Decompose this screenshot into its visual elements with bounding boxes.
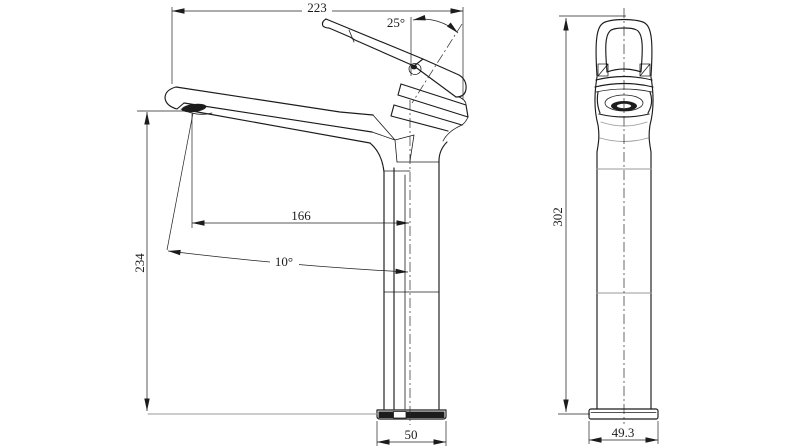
dim-handle-angle: 25° (387, 15, 458, 76)
dim-base-width-side: 50 (377, 421, 446, 446)
handle-step-line (349, 30, 354, 42)
dim-overall-width: 223 (172, 0, 463, 100)
spout-mid-edge (184, 103, 372, 132)
dim-spout-angle: 10° (167, 113, 408, 272)
front-left-edge (595, 77, 599, 409)
technical-drawing-page: 223 25° 166 10° 234 50 (0, 0, 800, 447)
body-facet-horizontals (384, 162, 439, 171)
pivot-boss-dot (411, 65, 417, 70)
faucet-technical-drawing: 223 25° 166 10° 234 50 (0, 0, 800, 447)
spout-nose (165, 87, 184, 109)
dim-overall-width-label: 223 (307, 0, 327, 15)
handle-axis-centerline (412, 24, 462, 103)
front-right-edge (649, 77, 653, 409)
spout-top-edge (176, 87, 373, 115)
dim-base-width-side-label: 50 (405, 427, 418, 442)
base-fill-side (379, 412, 445, 419)
dim-base-width-front-label: 49.3 (612, 425, 635, 440)
right-shoulder-curve (439, 142, 447, 161)
dim-spout-height: 234 (132, 111, 190, 411)
dim-overall-height: 302 (550, 16, 626, 414)
cartridge-band (391, 105, 462, 131)
dim-spout-angle-label: 10° (275, 254, 293, 269)
collar-curve-1 (596, 77, 652, 81)
dim-spout-height-label: 234 (132, 253, 147, 273)
aerator-side (181, 103, 207, 114)
body-facets (372, 115, 414, 162)
dim-base-width-front: 49.3 (589, 421, 658, 444)
base-outline-front (589, 409, 658, 419)
dim-overall-height-label: 302 (550, 207, 565, 227)
dim-handle-angle-label: 25° (387, 15, 405, 30)
dim-spout-reach: 166 (192, 114, 409, 228)
front-view (589, 8, 658, 424)
handle-top-edge (326, 19, 423, 59)
cap-band (398, 84, 468, 117)
supply-inlet-notch (394, 412, 407, 419)
dim-spout-reach-label: 166 (291, 208, 311, 223)
